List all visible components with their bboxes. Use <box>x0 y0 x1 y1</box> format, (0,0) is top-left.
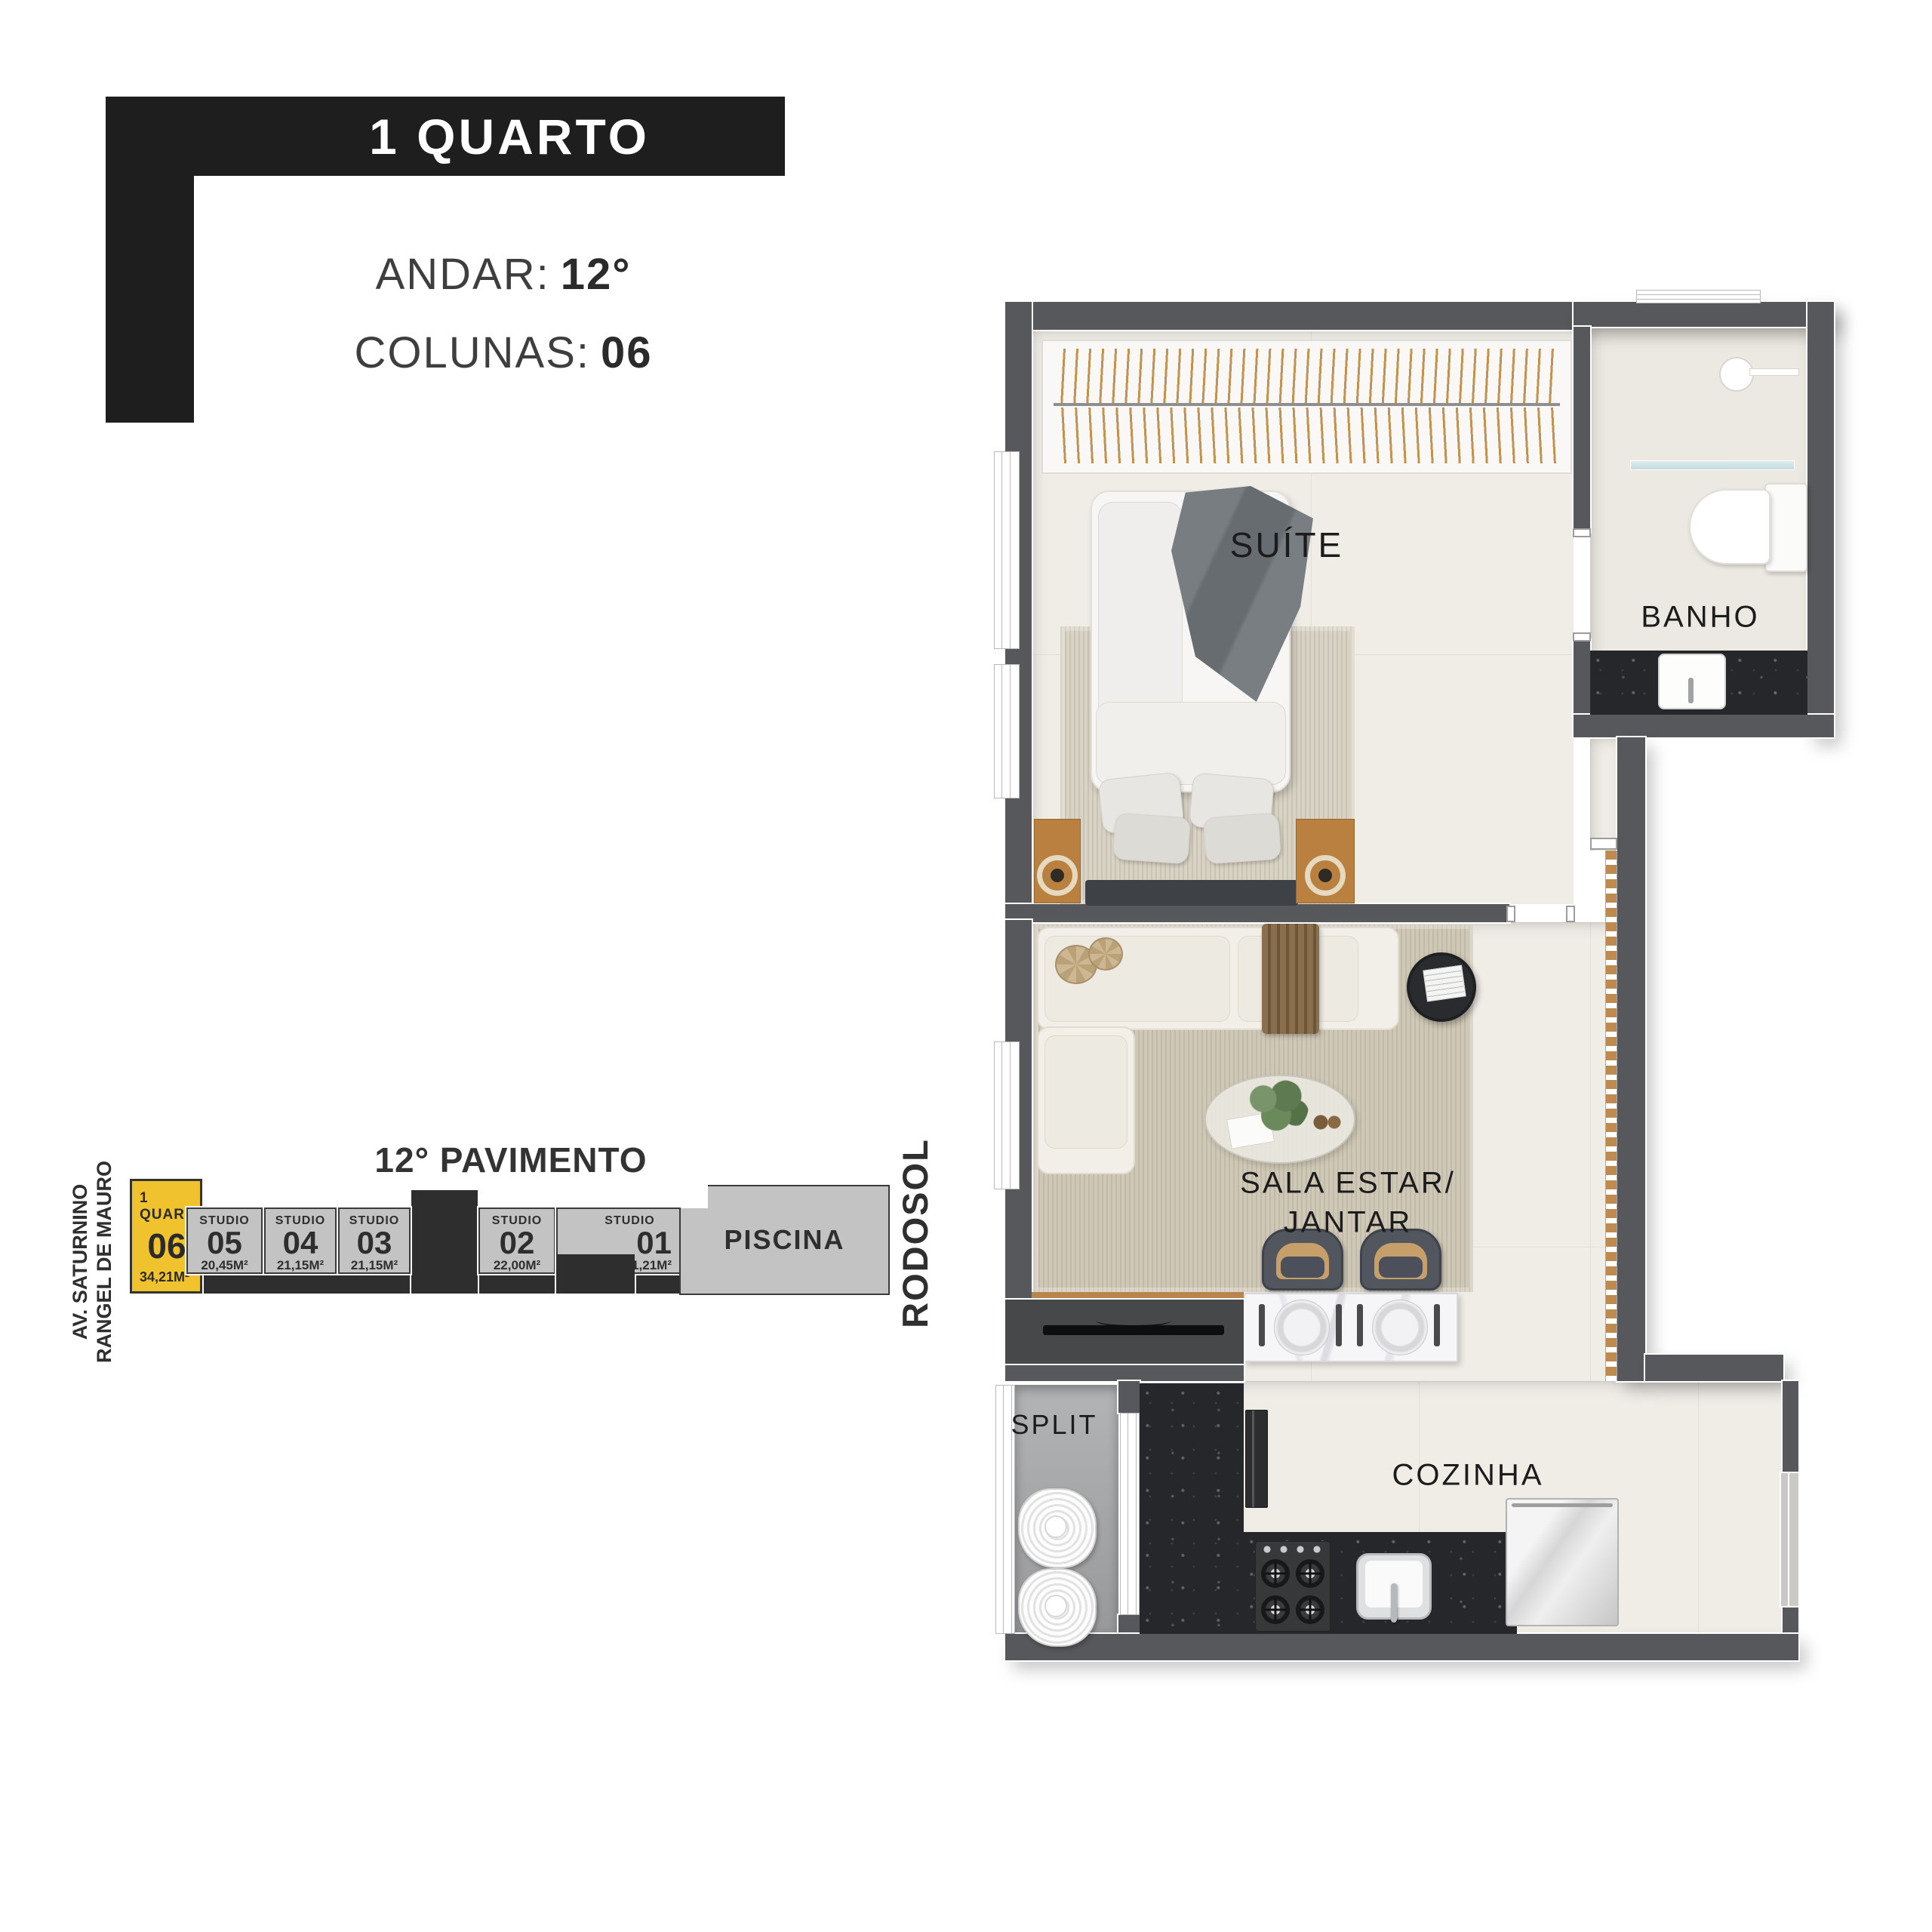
burner-1 <box>1261 1559 1290 1588</box>
hall-nook-floor <box>1590 737 1617 851</box>
toilet-bowl <box>1689 489 1770 565</box>
wall-split-stub-bottom <box>1118 1615 1140 1634</box>
pool-block[interactable]: PISCINA <box>679 1185 890 1295</box>
sofa-chaise-cushion <box>1044 1035 1128 1149</box>
columns-line: COLUNAS: 06 <box>171 318 835 386</box>
place-setting-2 <box>1372 1300 1428 1355</box>
nightstand-lamp-left <box>1037 855 1078 896</box>
glass-shelf <box>1630 460 1795 470</box>
wall-suite-top <box>1005 302 1574 330</box>
room-label-suite: SUÍTE <box>1230 525 1343 565</box>
street-label-left: AV. SATURNINO RANGEL DE MAURO <box>67 1137 117 1386</box>
unit-03-area: 21,15M² <box>351 1258 398 1273</box>
ac-fan-hub-2 <box>1044 1595 1067 1617</box>
wall-kitchen-right-top <box>1783 1381 1798 1472</box>
kitchen-counter-vertical <box>1140 1383 1244 1634</box>
wall-banho-right <box>1807 302 1834 737</box>
cozinha-label-text: COZINHA <box>1392 1459 1544 1492</box>
unit-03-number: 03 <box>357 1228 392 1258</box>
burner-3 <box>1261 1595 1290 1624</box>
cutlery-1 <box>1259 1304 1265 1346</box>
room-label-sala-line2: JANTAR <box>1284 1206 1413 1240</box>
unit-06-number: 06 <box>147 1231 186 1262</box>
pool-label: PISCINA <box>724 1224 844 1256</box>
unit-01-number: 01 <box>636 1228 672 1258</box>
burner-2 <box>1296 1559 1324 1588</box>
wall-kitchen-cap <box>1645 1355 1783 1381</box>
floor-label: ANDAR: <box>376 249 550 300</box>
stove-knobs <box>1263 1546 1323 1553</box>
page: 1 QUARTO ANDAR: 12° COLUNAS: 06 12° PAVI… <box>0 0 1932 1932</box>
room-label-sala-line1: SALA ESTAR/ <box>1240 1167 1456 1201</box>
split-label-text: SPLIT <box>1011 1409 1097 1440</box>
unit-02-area: 22,00M² <box>494 1258 540 1273</box>
unit-04-number: 04 <box>283 1228 318 1258</box>
tv-stand <box>1096 1315 1171 1327</box>
section-core-tower <box>411 1190 478 1294</box>
sofa-throw <box>1262 924 1319 1034</box>
section-core-notch-top <box>556 1254 635 1294</box>
suite-window-1 <box>994 451 1020 649</box>
banho-door-jamb-top <box>1573 528 1591 537</box>
toilet-paper-arm <box>1749 368 1799 376</box>
wall-hall-east <box>1617 737 1645 1381</box>
living-window <box>994 1041 1020 1189</box>
wall-oven <box>1245 1410 1268 1508</box>
unit-04-area: 21,15M² <box>277 1258 324 1273</box>
closet-rail <box>1054 403 1560 406</box>
bed-pillow-4 <box>1203 813 1281 865</box>
banho-faucet <box>1688 678 1694 703</box>
unit-05-area: 20,45M² <box>201 1258 248 1273</box>
street-left-line2: RANGEL DE MAURO <box>92 1161 116 1363</box>
cutlery-2 <box>1357 1304 1363 1346</box>
unit-03[interactable]: STUDIO 03 21,15M² <box>338 1207 411 1274</box>
page-title: 1 QUARTO <box>369 108 650 165</box>
wall-bottom <box>1005 1634 1798 1660</box>
wall-suite-bottom <box>1005 904 1509 922</box>
bed-headboard-bench <box>1085 880 1298 906</box>
toilet-tank <box>1764 483 1807 572</box>
brise-hatch-strip <box>1605 851 1617 1381</box>
room-label-banho: BANHO <box>1641 601 1759 635</box>
wall-banho-top <box>1574 302 1834 327</box>
wall-kitchen-right-bottom <box>1783 1607 1798 1634</box>
unit-05[interactable]: STUDIO 05 20,45M² <box>186 1207 263 1274</box>
suite-door-jamb-right <box>1566 906 1575 922</box>
closet-hangers-top <box>1055 349 1558 403</box>
pavement-title: 12° PAVIMENTO <box>330 1136 692 1184</box>
unit-04[interactable]: STUDIO 04 21,15M² <box>264 1207 337 1274</box>
nook-door-jamb <box>1590 838 1617 850</box>
closet-hangers-bottom <box>1055 408 1558 463</box>
unit-05-number: 05 <box>207 1228 242 1258</box>
sala-label-line1: SALA ESTAR/ <box>1240 1167 1456 1200</box>
bed-fold-band <box>1096 702 1286 785</box>
wall-split-stub-top <box>1118 1381 1140 1413</box>
kitchen-faucet <box>1391 1583 1397 1623</box>
bed-pillow-2 <box>1112 813 1191 865</box>
wall-suite-banho-upper <box>1574 327 1590 532</box>
page-title-banner: 1 QUARTO <box>106 97 785 176</box>
split-kitchen-door <box>1120 1413 1140 1615</box>
room-label-split: SPLIT <box>1011 1409 1097 1441</box>
street-right-text: RODOSOL <box>894 1138 936 1328</box>
sala-label-line2: JANTAR <box>1284 1206 1413 1239</box>
columns-label: COLUNAS: <box>354 328 590 378</box>
unit-02-number: 02 <box>500 1228 535 1258</box>
kitchen-window <box>1780 1472 1800 1607</box>
unit-02[interactable]: STUDIO 02 22,00M² <box>478 1207 555 1274</box>
banho-window <box>1636 290 1761 303</box>
banho-label-text: BANHO <box>1641 601 1759 634</box>
fridge-handle <box>1512 1503 1613 1507</box>
suite-window-2 <box>994 664 1020 798</box>
columns-value: 06 <box>601 328 653 378</box>
floor-line: ANDAR: 12° <box>171 240 835 308</box>
wall-banho-bottom <box>1574 715 1834 737</box>
suite-door-jamb-left <box>1506 906 1515 922</box>
coffee-table-cups <box>1312 1111 1342 1134</box>
place-setting-1 <box>1274 1300 1330 1355</box>
nightstand-lamp-right <box>1305 855 1346 896</box>
banho-door-jamb-bottom <box>1573 632 1591 641</box>
street-left-line1: AV. SATURNINO <box>68 1184 92 1340</box>
wall-living-bottom <box>1005 1362 1244 1381</box>
fridge <box>1506 1498 1619 1626</box>
tv-ledge-wood <box>1032 1292 1244 1300</box>
side-table-papers <box>1423 965 1466 1002</box>
suite-label-text: SUÍTE <box>1230 525 1343 565</box>
street-label-right: RODOSOL <box>894 1128 935 1339</box>
burner-4 <box>1296 1595 1324 1624</box>
ac-fan-hub-1 <box>1044 1515 1067 1538</box>
room-label-cozinha: COZINHA <box>1392 1459 1544 1493</box>
pavement-title-text: 12° PAVIMENTO <box>374 1140 647 1180</box>
floor-value: 12° <box>561 249 632 300</box>
pouf-2 <box>1088 937 1123 971</box>
